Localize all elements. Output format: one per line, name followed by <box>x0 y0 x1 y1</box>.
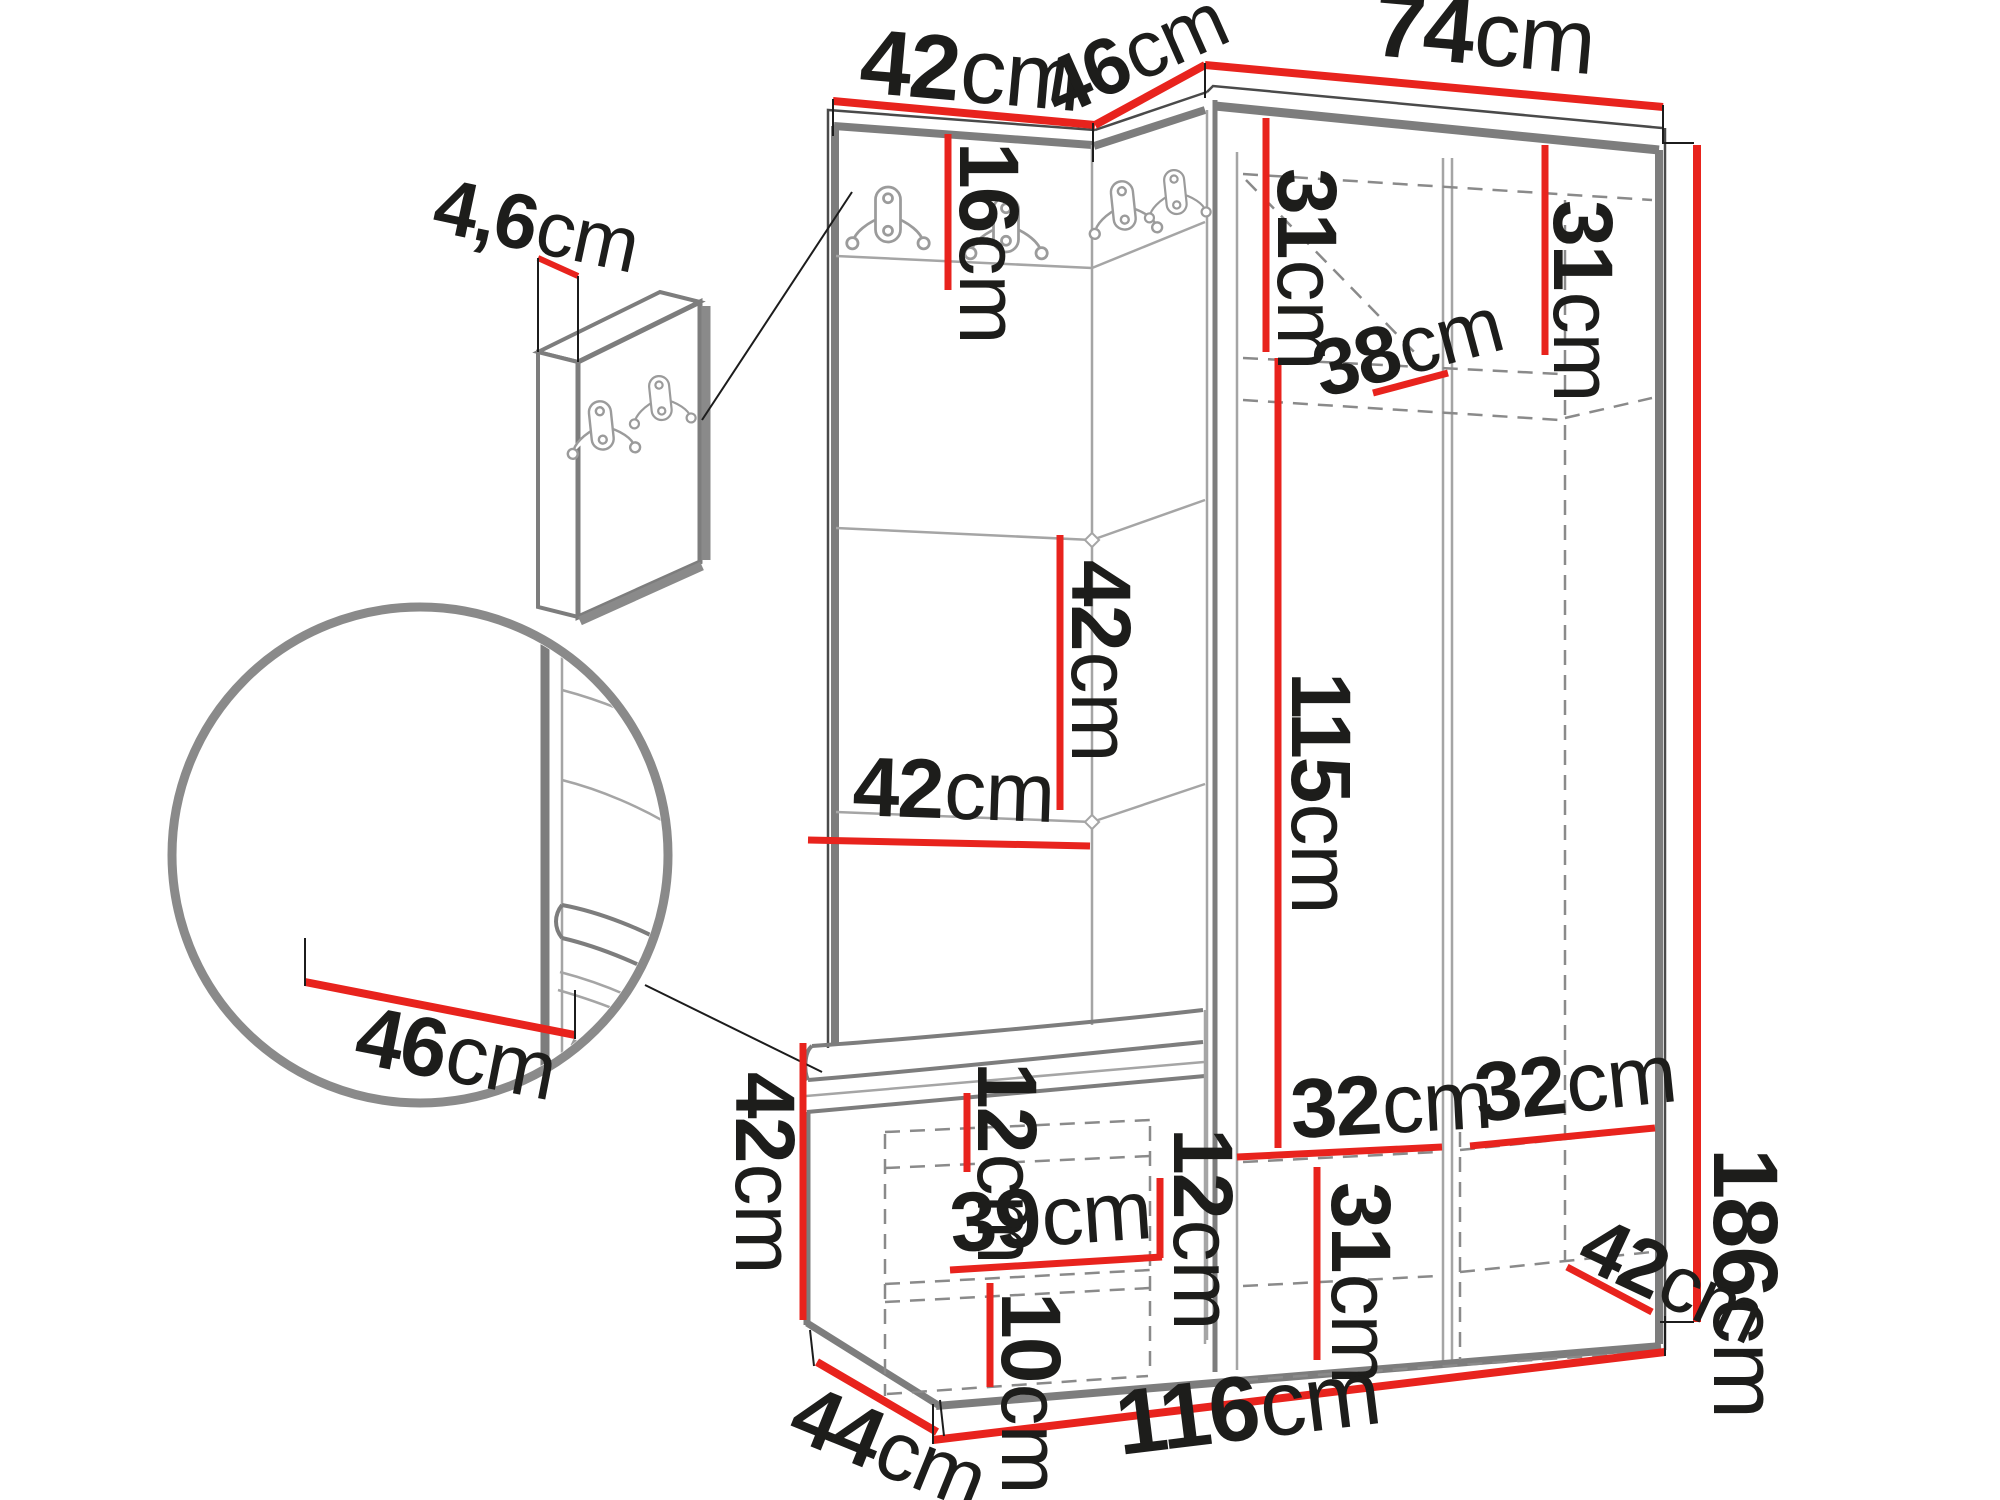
dim-line-42-horizontal <box>808 840 1090 846</box>
dim-bench-inner-width-label: 39cm <box>947 1162 1154 1270</box>
pointer-line-circle <box>645 985 822 1072</box>
dim-corner-top-width-label: 46cm <box>1029 0 1240 134</box>
coat-hook-icon <box>1085 178 1163 240</box>
bench-shelf-mid-1 <box>885 1270 1150 1284</box>
coat-hook-icon <box>1140 167 1211 223</box>
cushion-seam-1-corner <box>1092 500 1205 540</box>
tuft-diamond <box>1085 533 1099 547</box>
dim-total-width-label: 116cm <box>1110 1341 1386 1475</box>
dim-hanging-space-height-label: 115cm <box>1274 672 1368 914</box>
dim-bench-height-label: 42cm <box>718 1072 812 1273</box>
coat-hook-icon <box>847 187 930 249</box>
dim-wall-panel-thickness-label: 4,6cm <box>426 161 646 290</box>
tuft-diamond <box>1085 815 1099 829</box>
dim-right-door-shelf-height-label: 31cm <box>1536 200 1630 401</box>
tick-step-right <box>1663 105 1694 143</box>
cushion-seam-2-corner <box>1092 784 1205 822</box>
pointer-line-panel <box>702 192 852 420</box>
diagram-page: 42cm 46cm 74cm 4,6cm 16cm 31cm 31cm 38cm… <box>0 0 2000 1500</box>
dim-hook-rail-height-label: 16cm <box>942 142 1036 343</box>
dim-bottom-left-shelf-width-label: 32cm <box>1288 1052 1494 1156</box>
wardrobe-top-edge <box>1215 106 1659 150</box>
dim-bench-bottom-gap-label: 10cm <box>984 1292 1078 1493</box>
rail-seam-corner <box>1092 222 1205 268</box>
wall-panel-side-face <box>538 352 578 617</box>
dim-cushion-panel-width-label: 42cm <box>851 739 1056 840</box>
tick <box>810 1330 814 1366</box>
dim-bench-shelf-gap-label: 12cm <box>1156 1128 1250 1329</box>
dim-bottom-right-shelf-width-label: 32cm <box>1470 1025 1680 1140</box>
shelf-38-line-left <box>1243 400 1560 420</box>
detail-shadow <box>572 1042 650 1080</box>
furniture-dimension-diagram: 42cm 46cm 74cm 4,6cm 16cm 31cm 31cm 38cm… <box>0 0 2000 1500</box>
seat-cushion-top <box>812 1010 1203 1046</box>
dim-cushion-panel-height-label: 42cm <box>1054 560 1148 761</box>
dim-bench-depth-label: 44cm <box>778 1366 1000 1500</box>
wardrobe-outer-top <box>1207 86 1662 128</box>
cushion-seam-1 <box>836 528 1092 540</box>
